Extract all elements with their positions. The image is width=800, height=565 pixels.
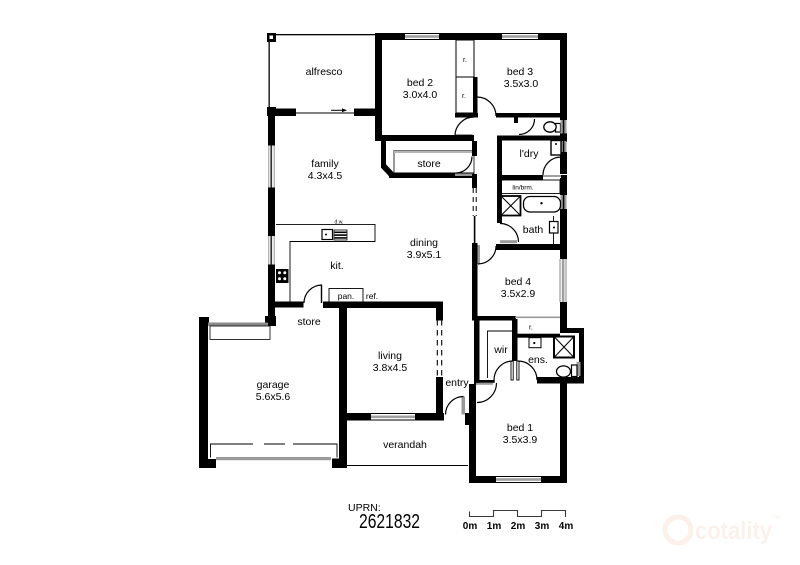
svg-text:l'dry: l'dry <box>520 148 540 160</box>
svg-text:r.: r. <box>462 93 466 100</box>
svg-text:living: living <box>378 350 402 362</box>
svg-text:verandah: verandah <box>383 439 427 451</box>
svg-text:™: ™ <box>772 513 781 523</box>
svg-text:kit.: kit. <box>330 260 343 272</box>
svg-text:0m: 0m <box>463 521 478 532</box>
svg-text:3m: 3m <box>535 521 550 532</box>
svg-text:r.: r. <box>463 57 467 64</box>
svg-text:family: family <box>311 158 339 170</box>
svg-text:ens.: ens. <box>528 354 548 366</box>
svg-text:3.5x3.0: 3.5x3.0 <box>504 78 539 90</box>
svg-text:pan.: pan. <box>338 291 355 301</box>
svg-text:3.5x2.9: 3.5x2.9 <box>501 288 536 300</box>
svg-text:d.w.: d.w. <box>335 220 344 226</box>
svg-text:bed 3: bed 3 <box>507 66 533 78</box>
svg-text:2621832: 2621832 <box>359 511 420 533</box>
svg-text:alfresco: alfresco <box>306 66 343 78</box>
svg-text:lin/brm.: lin/brm. <box>512 185 534 192</box>
svg-text:4.3x4.5: 4.3x4.5 <box>308 170 343 182</box>
svg-text:wir: wir <box>493 344 508 356</box>
svg-text:ref.: ref. <box>366 291 378 301</box>
svg-text:entry: entry <box>445 377 469 389</box>
svg-text:5.6x5.6: 5.6x5.6 <box>256 391 291 403</box>
svg-text:bed 1: bed 1 <box>507 422 533 434</box>
svg-text:store: store <box>297 316 321 328</box>
svg-text:dining: dining <box>410 237 438 249</box>
svg-text:store: store <box>417 158 441 170</box>
svg-text:bed 4: bed 4 <box>505 276 531 288</box>
svg-text:4m: 4m <box>559 521 574 532</box>
svg-text:r.: r. <box>529 325 533 332</box>
svg-text:3.5x3.9: 3.5x3.9 <box>503 434 538 446</box>
svg-text:3.8x4.5: 3.8x4.5 <box>373 362 408 374</box>
svg-text:cotality: cotality <box>695 517 772 545</box>
svg-text:bed 2: bed 2 <box>407 77 433 89</box>
svg-text:2m: 2m <box>511 521 526 532</box>
svg-text:bath: bath <box>523 224 544 236</box>
svg-text:garage: garage <box>257 379 290 391</box>
svg-text:3.9x5.1: 3.9x5.1 <box>407 249 442 261</box>
svg-text:1m: 1m <box>487 521 502 532</box>
svg-text:3.0x4.0: 3.0x4.0 <box>403 89 438 101</box>
